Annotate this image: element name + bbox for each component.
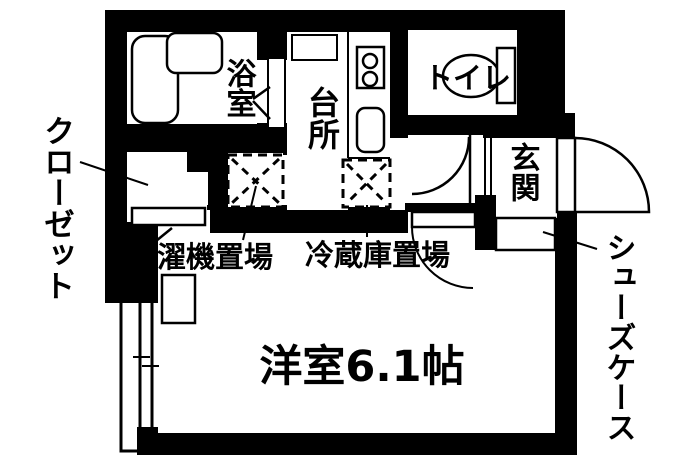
pillar-box — [162, 275, 195, 323]
room-door-leaf — [412, 212, 475, 227]
wall-bottom — [137, 433, 577, 455]
floorplan-drawing: 浴室 台所 トイレ 玄関 クローゼット 洗濯機置場 冷蔵庫置場 洋室6.1帖 シ… — [0, 0, 700, 467]
wall-closet-washer-divider — [207, 148, 228, 210]
wall-right — [555, 212, 577, 455]
kitchen-sink — [357, 108, 384, 152]
floor-closet-ext — [187, 170, 208, 205]
label-toilet: トイレ — [424, 61, 511, 95]
closet-door-front — [132, 208, 205, 225]
wall-top — [105, 10, 565, 32]
label-entrance: 玄関 — [505, 141, 540, 202]
kitchen-cabinet — [292, 35, 337, 60]
label-washing-machine: 洗濯機置場 — [128, 240, 273, 274]
label-shoe-case: シューズケース — [601, 232, 636, 442]
floor-hall — [408, 135, 483, 207]
floorplan-page: 浴室 台所 トイレ 玄関 クローゼット 洗濯機置場 冷蔵庫置場 洋室6.1帖 シ… — [0, 0, 700, 467]
entry-door-leaf — [557, 138, 575, 212]
label-closet: クローゼット — [38, 115, 74, 301]
label-kitchen: 台所 — [303, 86, 341, 151]
bathroom-door-panel — [268, 58, 285, 128]
wall-window-bottom-post — [137, 427, 158, 435]
wall-bath-right-upper — [255, 32, 287, 60]
floor-closet — [127, 152, 187, 205]
label-main-room: 洋室6.1帖 — [259, 342, 464, 392]
vanity-sink — [167, 33, 222, 73]
label-refrigerator: 冷蔵庫置場 — [305, 238, 450, 272]
wall-toilet-bottom — [405, 113, 575, 138]
wall-hall-mainroom — [405, 203, 478, 212]
label-bathroom: 浴室 — [221, 58, 257, 118]
wall-closet-notch — [187, 148, 208, 172]
